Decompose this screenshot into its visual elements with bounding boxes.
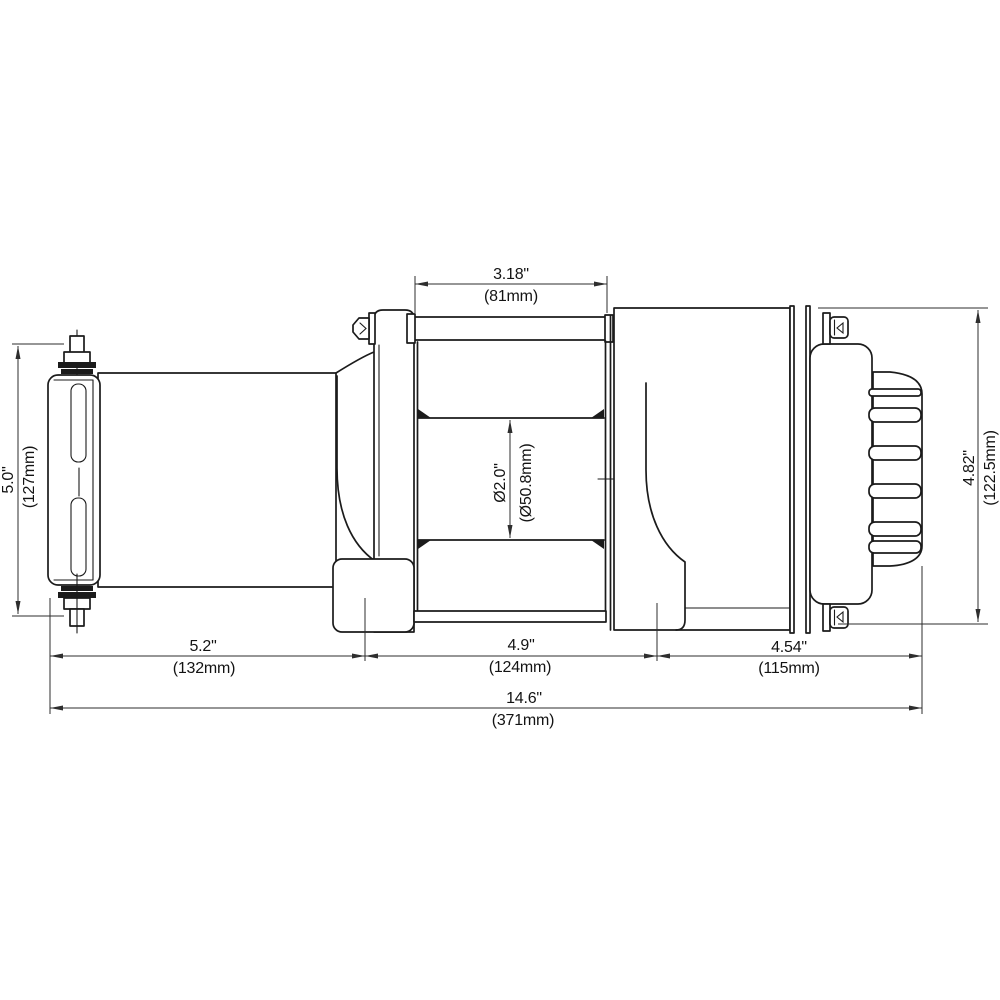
bracket-gusset-curve-left [337,376,375,561]
motor-end-cap [810,344,872,604]
knob-rib [869,446,921,460]
dimension-overall-length: 14.6" (371mm) [50,690,922,729]
overall-length-mm-label: (371mm) [492,712,555,729]
roller-fairlead [48,330,100,633]
motor-height-in-label: 4.82" [961,450,978,486]
housing-top-transition [336,352,374,373]
clutch-knob [873,372,922,566]
roller [48,375,100,585]
left-bracket-foot [333,559,414,632]
knob-rib [869,389,921,396]
top-tie-rod-left-cap [407,314,415,343]
left-bracket [333,310,414,632]
top-bolt-nut [64,352,90,363]
drum-section-mm-label: (124mm) [489,659,552,676]
top-tie-rod-right-cap [605,315,613,342]
top-washer [58,362,96,368]
winch-technical-drawing: 3.18" (81mm) 5.0" (127mm) Ø2.0" (Ø50.8mm… [0,0,1000,1000]
drum-width-in-label: 3.18" [493,266,529,283]
knob-rib [869,408,921,422]
drawing-svg: 3.18" (81mm) 5.0" (127mm) Ø2.0" (Ø50.8mm… [0,0,1000,1000]
bottom-tie-rod [414,611,606,622]
cap-bottom-bolt-head [830,607,848,628]
cap-top-bolt-boss [823,313,830,344]
cap-bottom-bolt-boss [823,604,830,631]
overall-length-in-label: 14.6" [506,690,542,707]
cap-top-bolt-head [830,317,848,338]
motor-height-mm-label: (122.5mm) [982,430,999,506]
knob-rib [869,522,921,536]
drum-diameter-mm-label: (Ø50.8mm) [518,443,535,522]
top-bolt-stem [70,336,84,353]
drum-section-in-label: 4.9" [507,637,534,654]
drum-width-mm-label: (81mm) [484,288,538,305]
fairlead-height-mm-label: (127mm) [21,446,38,509]
flange-plate-1 [790,306,794,633]
top-washer-2 [61,369,93,374]
motor-section-in-label: 4.54" [771,639,807,656]
dimension-drum-width: 3.18" (81mm) [415,266,607,313]
motor-housing [614,308,790,630]
knob-rib [869,541,921,553]
drum-diameter-in-label: Ø2.0" [492,463,509,502]
fairlead-section-mm-label: (132mm) [173,660,236,677]
motor-section-mm-label: (115mm) [758,660,819,677]
top-tie-rod [414,317,606,340]
dimension-drum-diameter: Ø2.0" (Ø50.8mm) [492,420,535,538]
left-bracket-bolt-flange [369,313,375,344]
fairlead-section-in-label: 5.2" [189,638,216,655]
motor-assembly [614,306,922,633]
fairlead-height-in-label: 5.0" [0,466,17,493]
knob-rib [869,484,921,498]
